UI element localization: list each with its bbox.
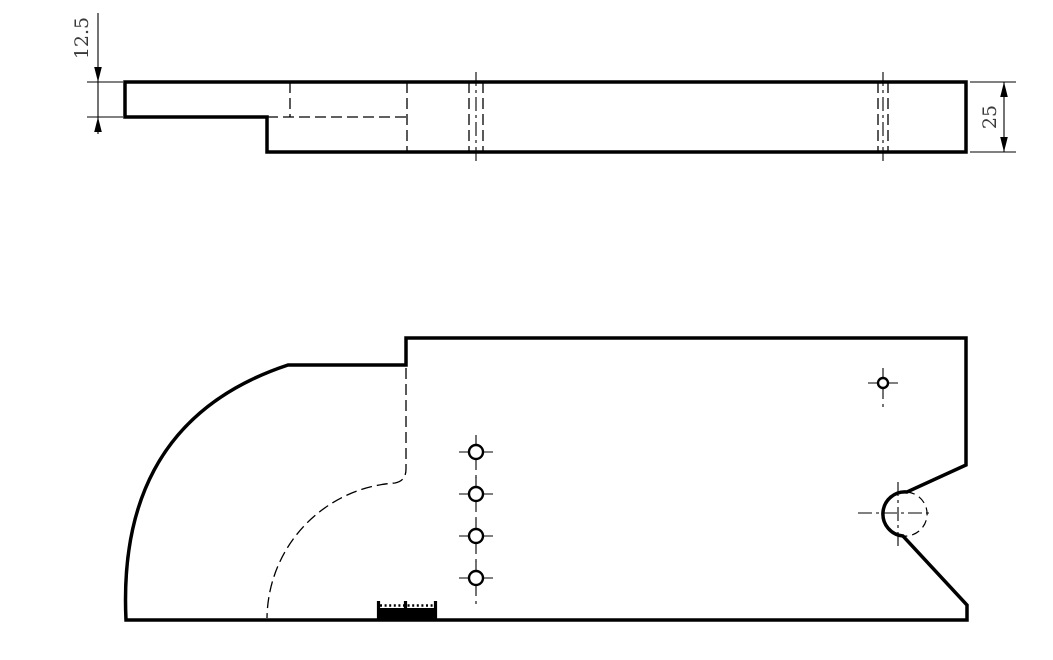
- arrow-up-icon: [1000, 82, 1008, 97]
- plan-corner-hole: [868, 368, 898, 407]
- notch-circle-phantom-arc: [903, 492, 927, 536]
- dimension-value: 25: [979, 105, 1001, 129]
- hole-circle: [469, 487, 483, 501]
- hidden-recess-edge: [267, 368, 406, 618]
- arrow-up-icon: [94, 117, 102, 132]
- drawing-sheet: 12.5 25: [0, 0, 1053, 660]
- side-view: 12.5 25: [71, 13, 1016, 162]
- hole: [459, 435, 493, 478]
- plan-view: [126, 338, 967, 620]
- hole: [868, 368, 898, 407]
- hole: [459, 519, 493, 562]
- hole: [459, 561, 493, 604]
- dimension-thickness: 12.5: [71, 13, 123, 134]
- plan-view-outline: [126, 338, 967, 620]
- hole-circle: [469, 529, 483, 543]
- technical-drawing: 12.5 25: [0, 0, 1053, 660]
- plan-small-holes: [459, 435, 493, 604]
- hole-circle: [469, 571, 483, 585]
- hole-circle: [469, 445, 483, 459]
- hole: [459, 477, 493, 520]
- dimension-height: 25: [970, 82, 1016, 152]
- hole-circle: [878, 378, 888, 388]
- side-view-outline: [125, 82, 966, 152]
- serrated-block: [377, 601, 437, 620]
- arrow-down-icon: [1000, 137, 1008, 152]
- arrow-down-icon: [94, 67, 102, 82]
- dimension-value: 12.5: [71, 17, 93, 59]
